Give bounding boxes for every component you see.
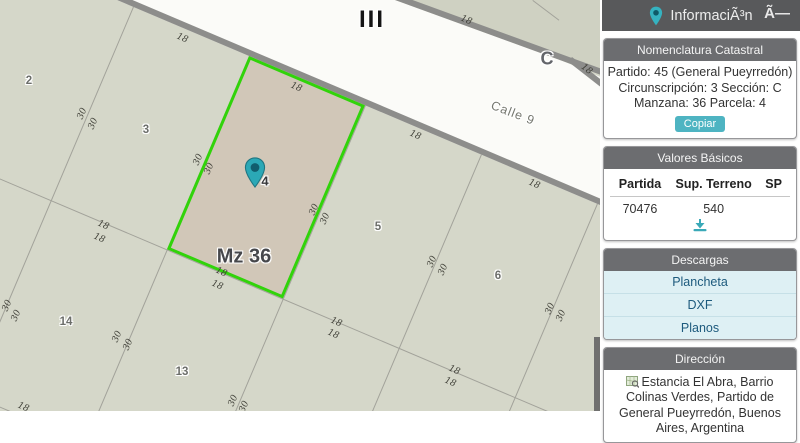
block-label: Mz 36: [217, 246, 271, 269]
dimension-label: 18: [16, 402, 30, 411]
dimension-label: 30: [438, 263, 451, 277]
partida-value: 70476: [610, 197, 670, 217]
col-sup-terreno: Sup. Terreno: [670, 174, 757, 197]
district-label: III: [359, 6, 385, 34]
panel-descargas: Descargas Plancheta DXF Planos: [603, 248, 797, 340]
dimension-label: 18: [175, 33, 189, 46]
copy-button[interactable]: Copiar: [675, 116, 725, 132]
circunscripcion-line: Circunscripción: 3 Sección: C: [606, 81, 794, 97]
download-plancheta[interactable]: Plancheta: [604, 271, 796, 293]
dimension-label: 18: [408, 130, 422, 143]
dimension-label: 30: [309, 203, 322, 217]
dimension-label: 30: [545, 302, 558, 316]
panel-nomenclatura-catastral: Nomenclatura Catastral Partido: 45 (Gene…: [603, 38, 797, 139]
street-name-label: Calle 9: [489, 98, 537, 128]
dimension-label: 18: [326, 329, 340, 342]
dimension-label: 30: [123, 338, 136, 352]
dimension-label: 30: [556, 309, 569, 323]
dimension-label: 30: [112, 330, 125, 344]
panel-direccion: Dirección Estancia El Abra, Barrio Colin…: [603, 347, 797, 443]
map-preview-icon: [626, 375, 639, 388]
dimension-label: 18: [443, 377, 457, 390]
dimension-label: 30: [193, 153, 206, 167]
manzana-parcela-line: Manzana: 36 Parcela: 4: [606, 96, 794, 112]
dimension-label: 30: [320, 212, 333, 226]
dimension-label: 30: [239, 400, 252, 411]
dimension-label: 18: [214, 267, 228, 280]
dimension-label: 30: [204, 162, 217, 176]
parcel-number-label: 6: [495, 270, 501, 282]
sidebar-titlebar: InformaciÃ³n Ã—: [602, 0, 800, 31]
sp-value: [757, 197, 790, 217]
sup-terreno-value: 540: [670, 197, 757, 217]
cadastral-map-canvas[interactable]: III C Calle 9 Mz 36 4 181818181818181818…: [0, 0, 600, 411]
panel-valores-basicos: Valores Básicos Partida Sup. Terreno SP …: [603, 146, 797, 241]
dimension-label: 18: [289, 82, 303, 95]
panel-title: Dirección: [604, 348, 796, 370]
download-dxf[interactable]: DXF: [604, 293, 796, 316]
parcel-number-label: 5: [375, 221, 381, 233]
map-scrollbar-thumb[interactable]: [594, 337, 600, 411]
dimension-label: 30: [427, 255, 440, 269]
parcel-number-label: 14: [60, 316, 73, 328]
partido-line: Partido: 45 (General Pueyrredón): [606, 65, 794, 81]
parcel-number-label: 2: [26, 75, 32, 87]
location-pin-icon: [649, 6, 663, 26]
dimension-label: 18: [210, 280, 224, 293]
parcel-number-label: 3: [143, 124, 149, 136]
selected-parcel-number: 4: [261, 174, 268, 189]
col-sp: SP: [757, 174, 790, 197]
dimension-label: 18: [527, 179, 541, 192]
dimension-label: 18: [447, 365, 461, 378]
close-icon[interactable]: Ã—: [764, 4, 790, 24]
sidebar-title: InformaciÃ³n: [670, 8, 752, 24]
info-sidebar: InformaciÃ³n Ã— Nomenclatura Catastral P…: [600, 0, 800, 411]
dimension-label: 30: [11, 309, 24, 323]
dimension-label: 18: [96, 220, 110, 233]
panel-title: Nomenclatura Catastral: [604, 39, 796, 61]
dimension-label: 30: [77, 107, 90, 121]
dimension-label: 18: [459, 15, 473, 28]
download-planos[interactable]: Planos: [604, 316, 796, 339]
section-label: C: [541, 49, 554, 70]
dimension-label: 30: [88, 117, 101, 131]
address-text: Estancia El Abra, Barrio Colinas Verdes,…: [619, 375, 781, 436]
panel-title: Descargas: [604, 249, 796, 271]
map-annotations: III C Calle 9 Mz 36 4 181818181818181818…: [0, 0, 600, 411]
col-partida: Partida: [610, 174, 670, 197]
dimension-label: 18: [92, 233, 106, 246]
parcel-number-label: 13: [176, 366, 189, 378]
download-icon[interactable]: [692, 218, 708, 232]
panel-title: Valores Básicos: [604, 147, 796, 169]
dimension-label: 18: [579, 63, 594, 77]
